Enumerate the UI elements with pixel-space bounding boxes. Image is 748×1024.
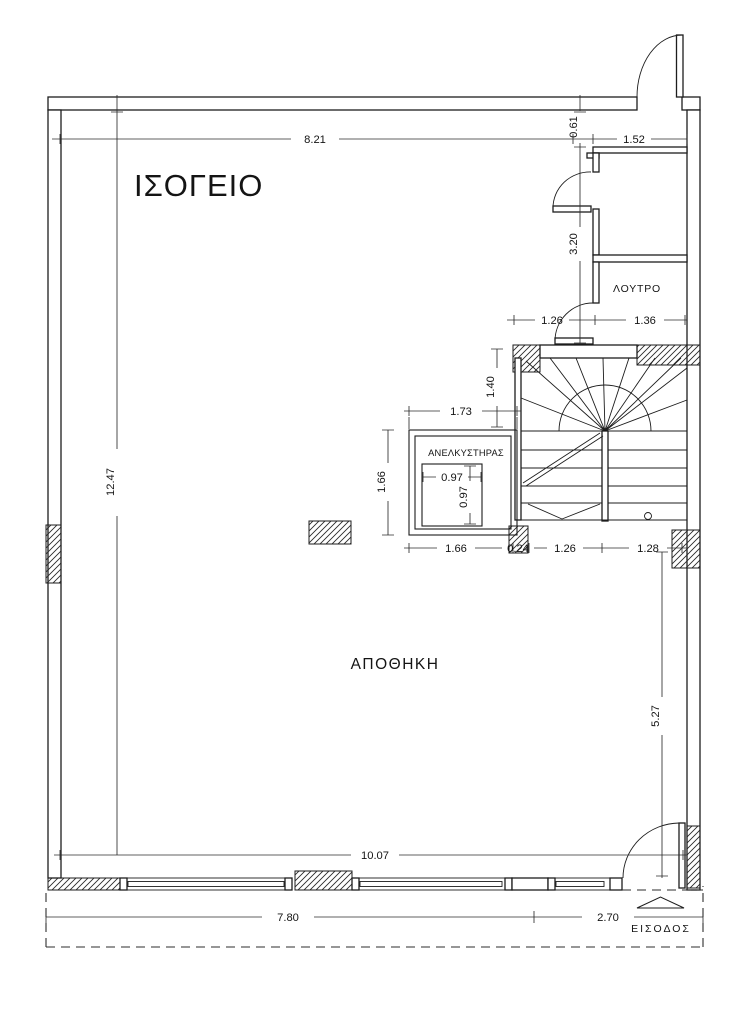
top-right-wall-stub bbox=[682, 97, 700, 110]
hall-left-wall-lower bbox=[593, 209, 599, 255]
right-wall bbox=[687, 110, 700, 890]
dim-shopfront-width: 10.07 bbox=[361, 850, 389, 862]
window-jamb bbox=[285, 878, 292, 890]
dim-line-top bbox=[52, 134, 687, 144]
dim-hall-height: 3.20 bbox=[568, 233, 580, 255]
stair-handrail-line bbox=[523, 433, 603, 486]
window-jamb bbox=[352, 878, 359, 890]
room-label-storage: ΑΠΟΘΗΚΗ bbox=[351, 656, 440, 673]
window-glazing-3 bbox=[556, 882, 604, 887]
room-divider-wall bbox=[593, 255, 687, 262]
window-jamb bbox=[548, 878, 555, 890]
entrance-door-swing-arc bbox=[623, 823, 679, 878]
shopfront-panel bbox=[512, 878, 548, 890]
dim-stair-right: 1.28 bbox=[637, 543, 659, 555]
stair-top-wall bbox=[540, 345, 637, 358]
hall-top-wall bbox=[593, 147, 687, 153]
shopfront-pier-hatch-2 bbox=[295, 871, 352, 890]
right-wall-pier-hatch bbox=[672, 530, 700, 568]
dim-lobby-depth: 1.40 bbox=[485, 376, 497, 398]
dim-wall-gap: 0.24 bbox=[507, 543, 529, 555]
dim-plot-right: 2.70 bbox=[597, 912, 619, 924]
top-door-swing-arc bbox=[637, 35, 682, 97]
labels: ΙΣΟΓΕΙΟ ΑΠΟΘΗΚΗ ΕΙΣΟΔΟΣ bbox=[134, 168, 691, 935]
left-wall bbox=[48, 110, 61, 878]
stair-bottom-winders bbox=[528, 504, 600, 519]
entrance-label: ΕΙΣΟΔΟΣ bbox=[631, 923, 691, 935]
dim-landing-width: 1.26 bbox=[541, 315, 563, 327]
dim-shaft-width: 1.73 bbox=[450, 406, 472, 418]
dim-shaft-bottom-width: 1.66 bbox=[445, 543, 467, 555]
entrance-pier-hatch bbox=[687, 826, 700, 888]
room-label-elevator: ΑΝΕΛΚΥΣΤΗΡΑΣ bbox=[428, 448, 504, 458]
window-jamb bbox=[505, 878, 512, 890]
floor-plan-page: ΛΟΥΤΡΟ ΑΝΕΛΚΥΣΤΗΡΑΣ bbox=[0, 0, 748, 1024]
window-band-1 bbox=[120, 878, 292, 890]
top-wall bbox=[48, 97, 637, 110]
dim-top-right-width: 1.52 bbox=[623, 134, 645, 146]
dim-line-landing bbox=[507, 315, 687, 325]
dim-top-width: 8.21 bbox=[304, 134, 326, 146]
window-glazing-1 bbox=[128, 882, 284, 887]
window-jamb bbox=[120, 878, 127, 890]
floor-title: ΙΣΟΓΕΙΟ bbox=[134, 168, 263, 203]
floor-plan-canvas: ΛΟΥΤΡΟ ΑΝΕΛΚΥΣΤΗΡΑΣ bbox=[0, 0, 748, 1024]
elevator-shaft-outer bbox=[409, 430, 517, 535]
bathroom-left-wall bbox=[593, 262, 599, 303]
entrance-door-leaf bbox=[679, 823, 685, 888]
stair-newel-post bbox=[645, 513, 652, 520]
staircase bbox=[509, 345, 700, 553]
stair-wall-hatch-right bbox=[637, 345, 700, 365]
shopfront bbox=[48, 871, 622, 890]
free-column-hatch bbox=[309, 521, 351, 544]
window-glazing-2 bbox=[360, 882, 502, 887]
window-band-2 bbox=[352, 878, 512, 890]
dim-right-height: 5.27 bbox=[650, 705, 662, 727]
dim-shaft-depth: 1.66 bbox=[376, 471, 388, 493]
stair-winder-fan bbox=[521, 358, 687, 431]
left-wall-pier-hatch bbox=[46, 525, 61, 583]
dim-bathroom-width: 1.36 bbox=[634, 315, 656, 327]
hall-door-leaf bbox=[553, 206, 591, 212]
stair-center-spine bbox=[602, 431, 608, 521]
elevator-shaft: ΑΝΕΛΚΥΣΤΗΡΑΣ bbox=[409, 430, 517, 535]
stair-left-wall bbox=[515, 358, 521, 520]
dim-cab-depth: 0.97 bbox=[458, 486, 470, 508]
hall-left-wall-upper bbox=[593, 153, 599, 172]
entrance-door bbox=[622, 823, 703, 890]
hall-door-swing-arc bbox=[553, 172, 591, 208]
top-door-leaf bbox=[677, 35, 684, 97]
room-label-bathroom: ΛΟΥΤΡΟ bbox=[613, 283, 661, 295]
dim-recess: 0.61 bbox=[568, 116, 580, 138]
window-jamb bbox=[610, 878, 622, 890]
entrance-arrow-icon bbox=[637, 897, 684, 908]
shopfront-pier-hatch-1 bbox=[48, 878, 120, 890]
top-entry-door bbox=[637, 35, 683, 97]
dim-interior-height: 12.47 bbox=[105, 468, 117, 496]
dim-plot-left: 7.80 bbox=[277, 912, 299, 924]
dim-cab-width: 0.97 bbox=[441, 472, 463, 484]
dim-stair-left: 1.26 bbox=[554, 543, 576, 555]
